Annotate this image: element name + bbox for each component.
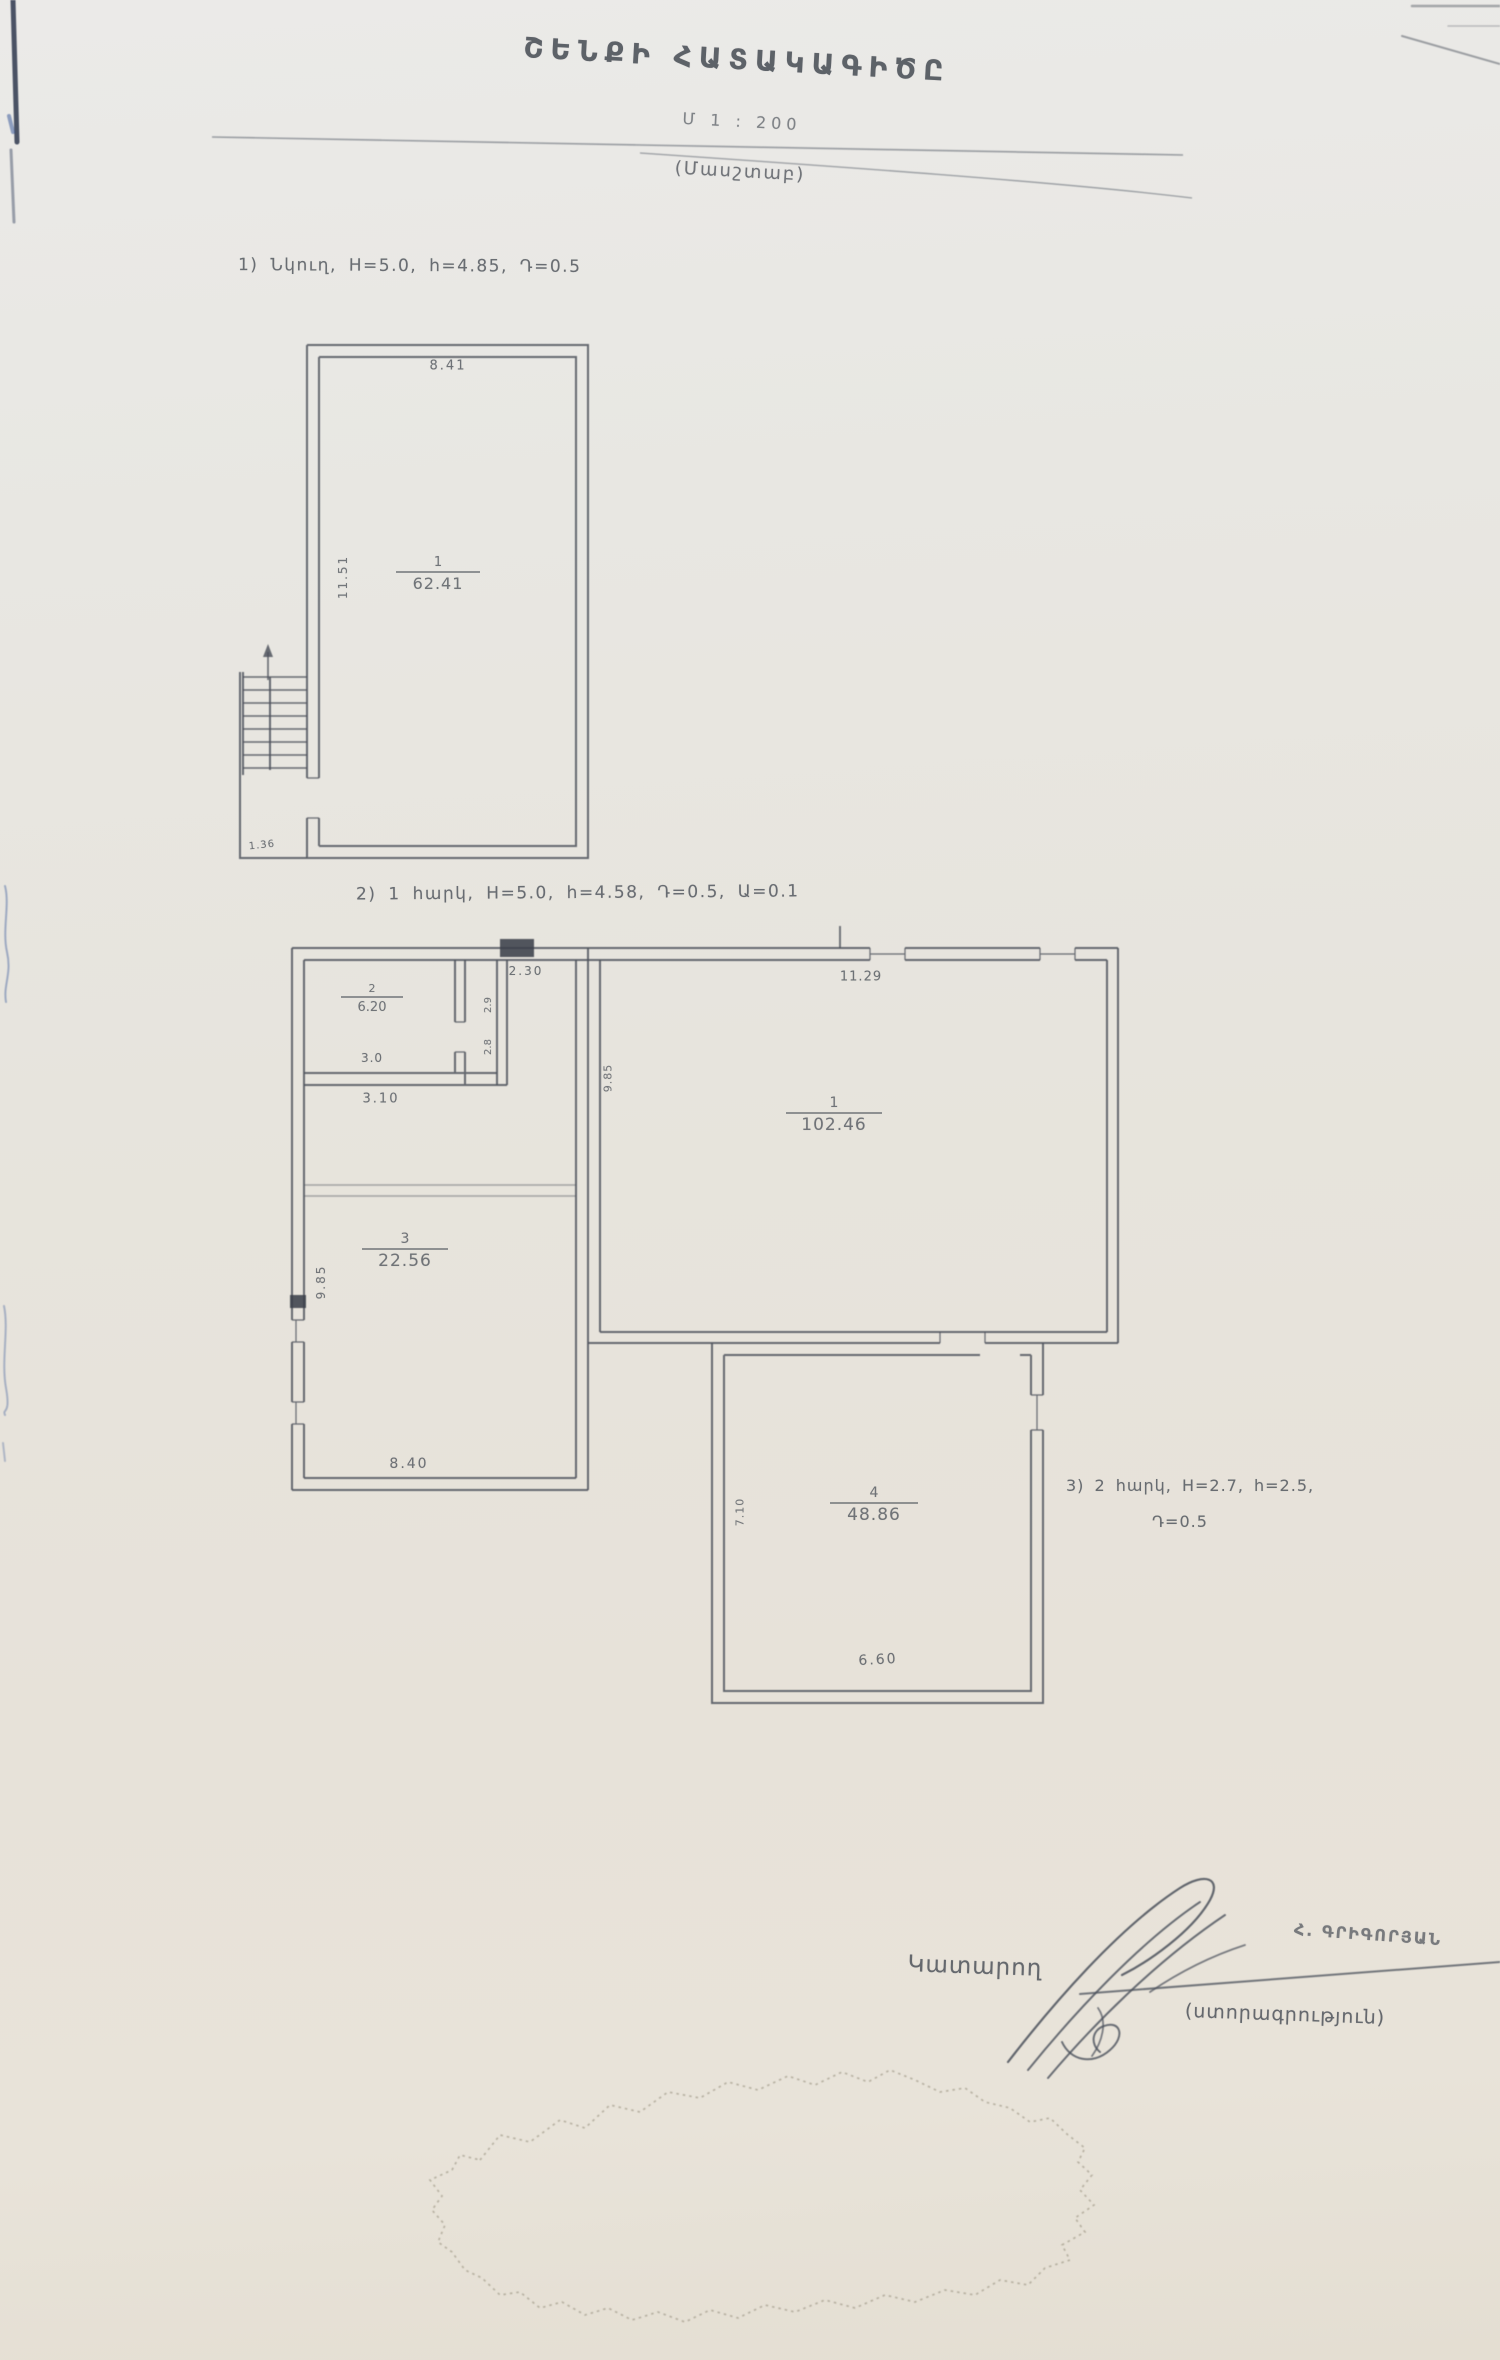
fraction-bar (830, 1502, 918, 1504)
signature-group (1008, 1879, 1500, 2078)
dim-room1-left: 9.85 (603, 1064, 614, 1093)
wall-room2 (304, 960, 507, 1085)
scan-artifacts (3, 0, 1500, 1461)
room-number: 3 (401, 1232, 410, 1246)
signature-stroke-3 (1048, 1915, 1225, 2078)
room-number: 1 (830, 1096, 839, 1110)
solid-wall-block-top (500, 939, 534, 957)
room-area: 102.46 (801, 1117, 866, 1134)
window-sills-leftwall (292, 1320, 304, 1424)
room-area: 62.41 (413, 576, 464, 592)
room-area: 22.56 (378, 1253, 432, 1270)
floor1-plan-drawing (290, 926, 1118, 1703)
note-floor2-line1: 3) 2 հարկ, H=2.7, h=2.5, (1066, 1476, 1314, 1497)
door-ticks-room2 (455, 1022, 465, 1052)
edge-pen-scribble-2 (4, 1306, 8, 1415)
room-label-floor1-3: 3 22.56 (362, 1232, 448, 1270)
solid-wall-pier-left (290, 1295, 306, 1308)
dim-corridor-upper: 2.9 (484, 997, 494, 1013)
partition-faint (304, 1185, 576, 1196)
edge-mark-topleft-2 (11, 150, 14, 222)
window-sills-topwall (870, 948, 1075, 960)
room-number: 4 (870, 1486, 879, 1500)
room-label-floor1-1: 1 102.46 (786, 1096, 882, 1134)
stamp-outline (430, 2070, 1094, 2322)
room-number: 1 (434, 556, 442, 569)
stair-direction-arrowhead (263, 644, 273, 657)
wall-corridor (497, 960, 507, 1085)
dim-basement-top: 8.41 (430, 360, 467, 373)
edge-mark-topleft (13, 0, 17, 142)
wall-bottom-leftblock (292, 1478, 588, 1490)
dim-basement-left: 11.51 (337, 555, 349, 599)
signature-rule (1080, 1962, 1500, 1994)
edge-pen-scribble-3 (3, 1443, 5, 1461)
basement-plan-drawing (240, 345, 588, 858)
fraction-bar (362, 1248, 448, 1250)
note-floor1: 2) 1 հարկ, H=5.0, h=4.58, Դ=0.5, Ա=0.1 (356, 880, 800, 905)
dim-corridor-lower: 2.8 (484, 1039, 494, 1055)
room-area: 6.20 (358, 1001, 387, 1014)
stair-shaft (240, 672, 307, 858)
wall-inner (319, 357, 576, 846)
title-underline (212, 137, 1183, 155)
room-label-floor1-2: 2 6.20 (341, 983, 403, 1014)
room-area: 48.86 (847, 1507, 901, 1524)
dim-room4-bottom: 6.60 (858, 1652, 898, 1668)
wall-middle-shared (576, 948, 600, 1490)
edge-pen-scribble-1 (5, 886, 9, 1002)
door-ticks-bigroom (940, 1332, 985, 1343)
edge-pen-smudge (9, 116, 13, 132)
dim-room4-left: 7.10 (735, 1498, 746, 1527)
dim-room2-inner: 3.0 (361, 1052, 383, 1064)
window-ticks-room4 (1031, 1395, 1043, 1430)
fraction-bar (341, 996, 403, 998)
dim-block-left: 9.85 (315, 1265, 327, 1300)
note-basement: 1) Նկուղ, H=5.0, h=4.85, Դ=0.5 (238, 254, 582, 278)
scanned-floorplan-page: ՇԵՆՔԻ ՀԱՏԱԿԱԳԻԾԸ Մ 1 : 200 (Մասշտաբ) 1) … (0, 0, 1500, 2360)
wall-bigroom-right (1107, 948, 1118, 1343)
wall-bigroom-bottom (588, 1332, 1118, 1343)
fraction-bar (396, 571, 480, 573)
fraction-bar (786, 1112, 882, 1114)
room-label-basement-1: 1 62.41 (396, 556, 480, 592)
dim-corridor-top: 2.30 (509, 965, 544, 977)
stair-treads (243, 677, 307, 768)
edge-mark-topright (1402, 36, 1500, 64)
dim-room2-bottom: 3.10 (363, 1093, 400, 1106)
dim-room3-bottom: 8.40 (389, 1457, 428, 1471)
room-label-floor1-4: 4 48.86 (830, 1486, 918, 1524)
note-floor2-line2: Դ=0.5 (1152, 1512, 1208, 1533)
room-number: 2 (369, 983, 376, 994)
wall-outer (307, 345, 588, 858)
stamp-blob (430, 2070, 1094, 2322)
dim-room1-top: 11.29 (840, 971, 882, 984)
signature-role-label: Կատարող (907, 1953, 1043, 1981)
door-ticks (307, 778, 319, 818)
